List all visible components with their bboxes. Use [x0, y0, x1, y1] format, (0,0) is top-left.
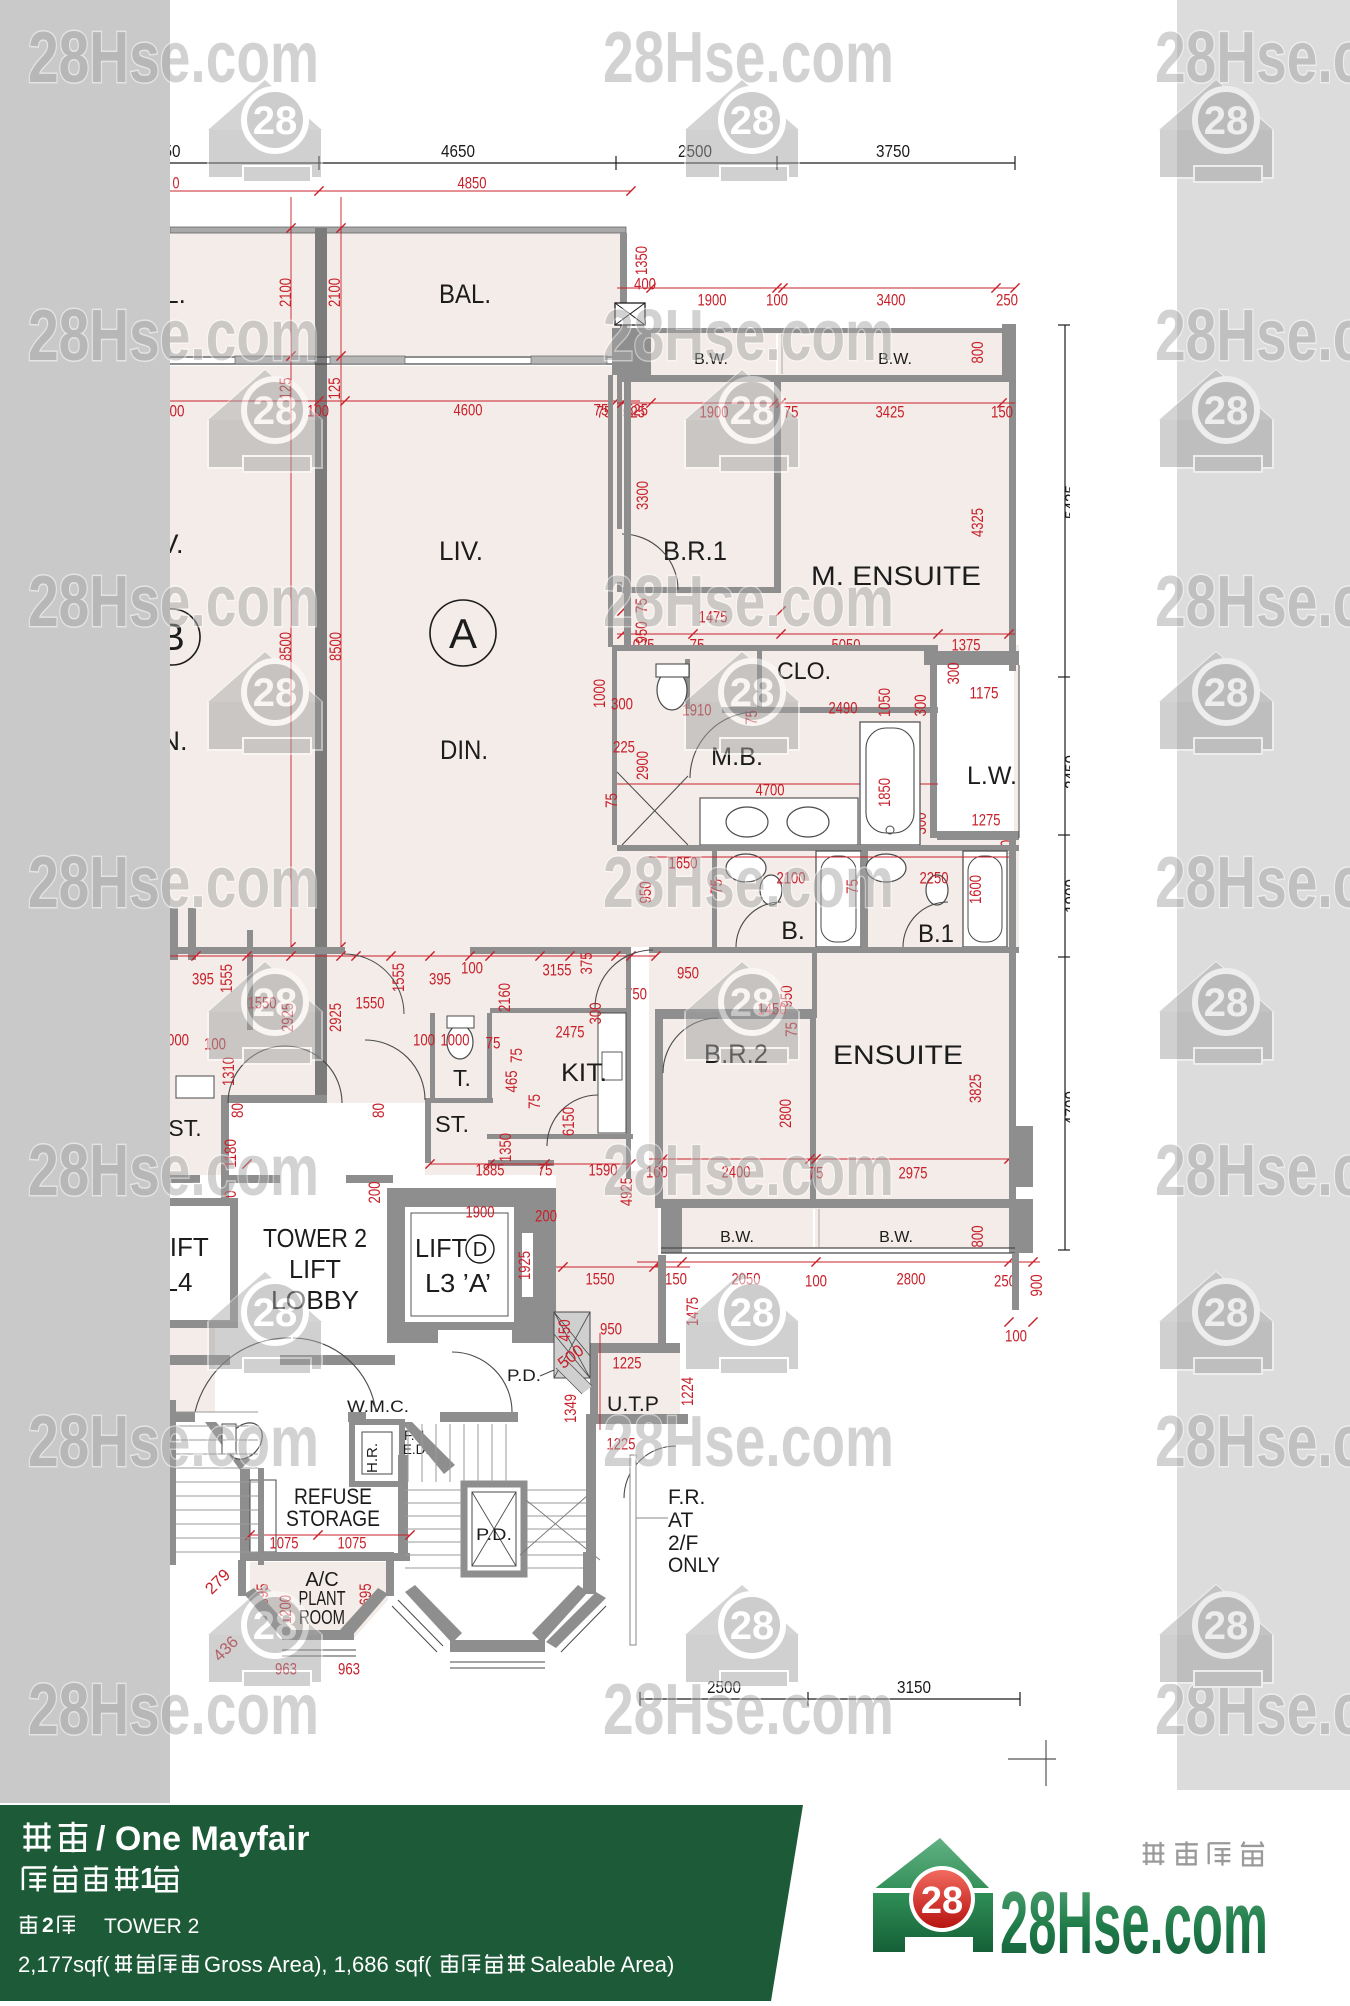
svg-text:1600: 1600	[967, 875, 985, 904]
svg-text:75: 75	[526, 1094, 544, 1109]
svg-text:B.1: B.1	[918, 920, 954, 948]
svg-text:W.M.C.: W.M.C.	[347, 1397, 409, 1416]
svg-text:300: 300	[912, 694, 930, 716]
svg-text:BAL.: BAL.	[439, 279, 491, 309]
svg-text:D: D	[473, 1239, 487, 1261]
svg-text:B.W.: B.W.	[879, 1229, 913, 1246]
svg-text:TOWER 2: TOWER 2	[104, 1915, 199, 1938]
svg-text:1310: 1310	[220, 1057, 238, 1086]
svg-text:1075: 1075	[338, 1534, 367, 1552]
svg-text:ONLY: ONLY	[668, 1554, 720, 1577]
svg-text:6150: 6150	[560, 1107, 578, 1136]
svg-text:T.: T.	[453, 1065, 471, 1091]
svg-text:28: 28	[921, 1880, 963, 1922]
svg-text:H.R.: H.R.	[364, 1443, 381, 1473]
svg-text:4850: 4850	[458, 174, 487, 192]
svg-text:80: 80	[370, 1103, 388, 1118]
svg-text:28Hse.com: 28Hse.com	[603, 843, 894, 923]
svg-text:4600: 4600	[454, 401, 483, 419]
svg-text:Gross Area), 1,686 sqf(: Gross Area), 1,686 sqf(	[204, 1952, 432, 1977]
svg-text:3155: 3155	[543, 961, 572, 979]
svg-text:B.W.: B.W.	[720, 1229, 754, 1246]
svg-text:1350: 1350	[633, 246, 651, 275]
svg-text:2490: 2490	[829, 699, 858, 717]
svg-text:2900: 2900	[634, 751, 652, 780]
svg-text:F.R.: F.R.	[668, 1486, 705, 1509]
svg-text:465: 465	[503, 1070, 521, 1092]
svg-text:P.D.: P.D.	[507, 1366, 541, 1385]
svg-text:3825: 3825	[967, 1074, 985, 1103]
svg-text:1050: 1050	[876, 688, 894, 717]
svg-text:1225: 1225	[613, 1354, 642, 1372]
svg-text:1349: 1349	[562, 1394, 580, 1423]
svg-text:2,177sqf(: 2,177sqf(	[18, 1952, 110, 1977]
svg-text:ENSUITE: ENSUITE	[833, 1040, 963, 1070]
svg-text:100: 100	[1005, 1327, 1027, 1345]
svg-text:000: 000	[167, 1031, 189, 1049]
svg-text:28Hse.com: 28Hse.com	[28, 1131, 319, 1211]
svg-text:4325: 4325	[969, 508, 987, 537]
svg-text:950: 950	[677, 964, 699, 982]
svg-text:1000: 1000	[591, 679, 609, 708]
svg-text:DIN.: DIN.	[440, 735, 488, 765]
svg-text:75: 75	[486, 1034, 501, 1052]
svg-text:28Hse.com: 28Hse.com	[603, 562, 894, 642]
svg-text:2160: 2160	[496, 983, 514, 1012]
svg-text:1900: 1900	[466, 1203, 495, 1221]
svg-text:80: 80	[229, 1103, 247, 1118]
svg-text:2800: 2800	[897, 1270, 926, 1288]
svg-text:100: 100	[805, 1272, 827, 1290]
svg-text:2475: 2475	[556, 1023, 585, 1041]
svg-text:1275: 1275	[972, 811, 1001, 829]
svg-text:8500: 8500	[327, 632, 345, 661]
svg-text:28Hse.com: 28Hse.com	[28, 1402, 319, 1482]
svg-text:395: 395	[429, 970, 451, 988]
svg-text:1850: 1850	[876, 778, 894, 807]
svg-text:28Hse.com: 28Hse.com	[1155, 296, 1350, 376]
svg-text:LIFT: LIFT	[289, 1254, 341, 1284]
svg-text:3425: 3425	[876, 403, 905, 421]
svg-text:00: 00	[170, 402, 185, 420]
svg-text:150: 150	[991, 403, 1013, 421]
svg-text:1550: 1550	[586, 1270, 615, 1288]
svg-text:3150: 3150	[897, 1677, 931, 1697]
svg-text:28Hse.com: 28Hse.com	[603, 1402, 894, 1482]
svg-text:28Hse.com: 28Hse.com	[1155, 562, 1350, 642]
svg-text:200: 200	[535, 1207, 557, 1225]
svg-text:ST.: ST.	[435, 1111, 469, 1137]
svg-text:1000: 1000	[441, 1031, 470, 1049]
svg-text:LIV.: LIV.	[439, 536, 483, 566]
svg-text:950: 950	[600, 1320, 622, 1338]
svg-text:2250: 2250	[920, 869, 949, 887]
svg-text:2925: 2925	[327, 1003, 345, 1032]
svg-text:A: A	[449, 610, 477, 657]
svg-text:1350: 1350	[497, 1133, 515, 1162]
svg-text:28Hse.com: 28Hse.com	[1000, 1873, 1268, 1972]
svg-text:AT: AT	[668, 1509, 693, 1532]
svg-text:300: 300	[587, 1002, 605, 1024]
svg-text:963: 963	[338, 1660, 360, 1678]
svg-text:1175: 1175	[970, 684, 999, 702]
svg-text:300: 300	[945, 662, 963, 684]
svg-text:100: 100	[461, 959, 483, 977]
svg-text:0: 0	[173, 174, 180, 192]
svg-text:2975: 2975	[899, 1164, 928, 1182]
svg-text:28Hse.com: 28Hse.com	[603, 296, 894, 376]
svg-text:395: 395	[192, 970, 214, 988]
svg-text:28Hse.com: 28Hse.com	[1155, 1131, 1350, 1211]
svg-text:28Hse.com: 28Hse.com	[603, 1131, 894, 1211]
svg-text:Saleable Area): Saleable Area)	[530, 1952, 674, 1977]
svg-text:KIT.: KIT.	[561, 1059, 607, 1087]
svg-text:28Hse.com: 28Hse.com	[28, 18, 319, 98]
svg-text:28Hse.com: 28Hse.com	[1155, 18, 1350, 98]
svg-text:200: 200	[366, 1181, 384, 1203]
svg-text:400: 400	[634, 275, 656, 293]
svg-text:1555: 1555	[390, 963, 408, 992]
svg-text:800: 800	[969, 1225, 987, 1247]
svg-text:3300: 3300	[634, 481, 652, 510]
svg-text:100: 100	[413, 1031, 435, 1049]
svg-text:3750: 3750	[876, 141, 910, 161]
svg-text:1925: 1925	[516, 1251, 534, 1280]
svg-text:75: 75	[508, 1048, 526, 1063]
svg-text:28Hse.com: 28Hse.com	[28, 562, 319, 642]
svg-text:28Hse.com: 28Hse.com	[1155, 1402, 1350, 1482]
svg-text:L3 ’A’: L3 ’A’	[425, 1268, 491, 1298]
svg-text:75: 75	[603, 793, 621, 808]
svg-text:1075: 1075	[270, 1534, 299, 1552]
svg-text:4650: 4650	[441, 141, 475, 161]
svg-text:1: 1	[140, 1863, 156, 1895]
svg-text:STORAGE: STORAGE	[286, 1506, 380, 1531]
svg-text:800: 800	[969, 341, 987, 363]
svg-text:TOWER 2: TOWER 2	[263, 1223, 367, 1253]
svg-text:P.D.: P.D.	[476, 1525, 512, 1544]
svg-text:2: 2	[42, 1914, 54, 1937]
svg-text:2800: 2800	[777, 1099, 795, 1128]
svg-text:28Hse.com: 28Hse.com	[28, 843, 319, 923]
svg-text:225: 225	[613, 738, 635, 756]
svg-text:2/F: 2/F	[668, 1532, 698, 1555]
svg-text:L.W.: L.W.	[967, 762, 1017, 790]
svg-text:28Hse.com: 28Hse.com	[28, 296, 319, 376]
svg-text:CLO.: CLO.	[777, 658, 831, 685]
svg-text:150: 150	[665, 1270, 687, 1288]
svg-text:/ One Mayfair: / One Mayfair	[96, 1820, 310, 1858]
svg-text:250: 250	[996, 291, 1018, 309]
svg-text:300: 300	[611, 695, 633, 713]
svg-text:450: 450	[556, 1319, 574, 1341]
svg-text:900: 900	[1028, 1274, 1046, 1296]
svg-text:28Hse.com: 28Hse.com	[1155, 843, 1350, 923]
svg-text:LIFT: LIFT	[415, 1233, 467, 1263]
svg-text:1550: 1550	[356, 994, 385, 1012]
